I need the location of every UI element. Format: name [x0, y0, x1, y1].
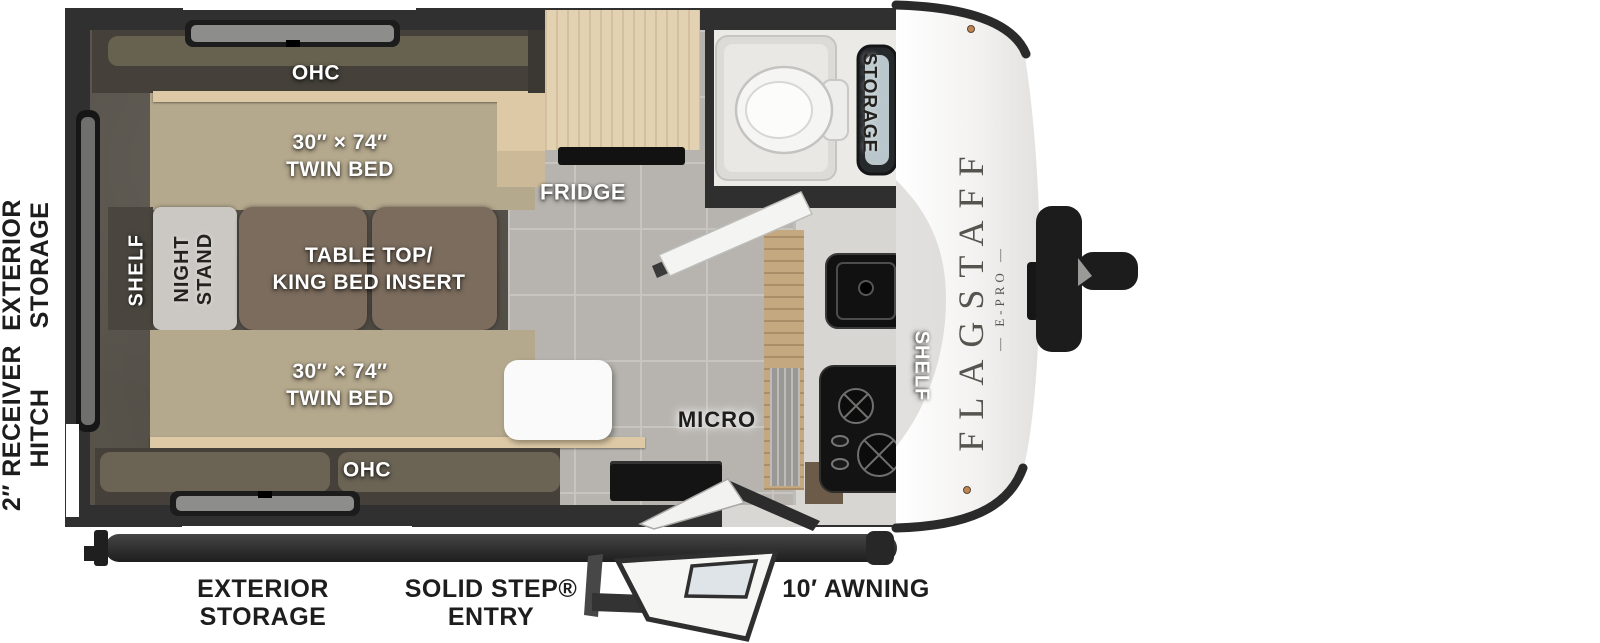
receiver-hitch-label: 2″ RECEIVER HITCH — [0, 345, 54, 511]
awning-roller — [105, 534, 897, 562]
brand-logo: FLAGSTAFF — E-PRO — — [950, 144, 1008, 451]
stabilizer-foot — [84, 546, 95, 561]
hitch-mount — [1027, 262, 1039, 320]
twin-bed-bottom-label: 30″ × 74″ TWIN BED — [286, 358, 394, 412]
wood-ledge-top — [153, 91, 545, 102]
shelf-kitchen-label: SHELF — [908, 331, 935, 402]
window-glass — [176, 496, 354, 511]
cap-rivet-bottom — [964, 487, 971, 494]
twin-bed-top-name: TWIN BED — [286, 156, 394, 183]
ohc-bottom-label: OHC — [343, 457, 391, 484]
wardrobe-cabinet — [528, 30, 545, 93]
brand-logo-sub: — E-PRO — — [992, 144, 1008, 451]
top-accent-strip — [183, 3, 416, 10]
bathroom-wall-bottom — [705, 186, 906, 208]
cap-rivet-top — [968, 26, 975, 33]
kitchen-cabinet-glass-door — [770, 368, 800, 486]
twin-bed-bottom-size: 30″ × 74″ — [286, 358, 394, 385]
step-rail — [584, 554, 603, 617]
fridge-label: FRIDGE — [540, 179, 626, 206]
receiver-hitch-line1: 2″ RECEIVER — [0, 345, 26, 511]
night-stand-line1: NIGHT — [171, 233, 194, 305]
micro-label: MICRO — [678, 407, 756, 433]
bottom-accent-strip — [182, 526, 412, 532]
shelf-rear-label: SHELF — [124, 233, 151, 306]
fridge-cabinet — [545, 10, 700, 150]
floorplan-canvas: OHC 30″ × 74″ TWIN BED TABLE TOP/ KING B… — [0, 0, 1600, 643]
step-door-window — [686, 561, 756, 597]
bottom-storage-line2: STORAGE — [197, 603, 329, 631]
microwave — [610, 461, 722, 501]
ohc-top-label: OHC — [292, 60, 340, 87]
table-king-line2: KING BED INSERT — [272, 269, 465, 296]
awning-bracket-right — [866, 531, 894, 565]
bottom-storage-line1: EXTERIOR — [197, 575, 329, 603]
solid-step-line2: ENTRY — [405, 603, 578, 631]
faucet-handle — [933, 271, 944, 302]
window-bottom — [170, 491, 360, 516]
rear-door-panel — [81, 117, 95, 425]
step-door-panel — [618, 551, 776, 639]
hitch-latch-detail — [1078, 258, 1092, 286]
twin-bed-bottom-name: TWIN BED — [286, 385, 394, 412]
night-stand-line2: STAND — [194, 233, 217, 305]
awning-label: 10′ AWNING — [782, 575, 930, 603]
cabinet-end-panel — [805, 462, 843, 504]
receiver-hitch-line2: HITCH — [26, 345, 54, 511]
solid-step-entry-label: SOLID STEP® ENTRY — [405, 575, 578, 631]
night-stand-label: NIGHT STAND — [171, 233, 217, 305]
hitch-jack-handle — [1078, 252, 1138, 290]
left-exterior-storage-label: EXTERIOR STORAGE — [0, 199, 54, 331]
rear-white-panel — [66, 424, 79, 517]
window-top — [185, 20, 400, 47]
solid-step-line1: SOLID STEP® — [405, 575, 578, 603]
window-latch — [286, 40, 300, 47]
fridge-vent — [558, 147, 685, 165]
bottom-exterior-storage-label: EXTERIOR STORAGE — [197, 575, 329, 631]
cap-trim-bottom — [896, 468, 1023, 528]
awning-bracket-left — [94, 530, 108, 566]
bath-storage-label: STORAGE — [858, 53, 881, 154]
bolster-cushion-bottom-1 — [100, 452, 330, 492]
cap-trim-top — [896, 5, 1026, 54]
window-latch — [258, 491, 272, 498]
table-king-label: TABLE TOP/ KING BED INSERT — [272, 242, 465, 296]
side-table — [504, 360, 612, 440]
left-exterior-line1: EXTERIOR — [0, 199, 26, 331]
step-base — [592, 593, 700, 615]
twin-bed-top-size: 30″ × 74″ — [286, 129, 394, 156]
corner-cabinet — [497, 93, 545, 187]
bathroom-wall-left — [705, 30, 714, 208]
brand-logo-name: FLAGSTAFF — [950, 144, 992, 451]
hitch-coupler — [1036, 206, 1082, 352]
twin-bed-top-label: 30″ × 74″ TWIN BED — [286, 129, 394, 183]
rear-storage-access-door — [76, 110, 100, 432]
left-exterior-line2: STORAGE — [26, 199, 54, 331]
table-king-line1: TABLE TOP/ — [272, 242, 465, 269]
